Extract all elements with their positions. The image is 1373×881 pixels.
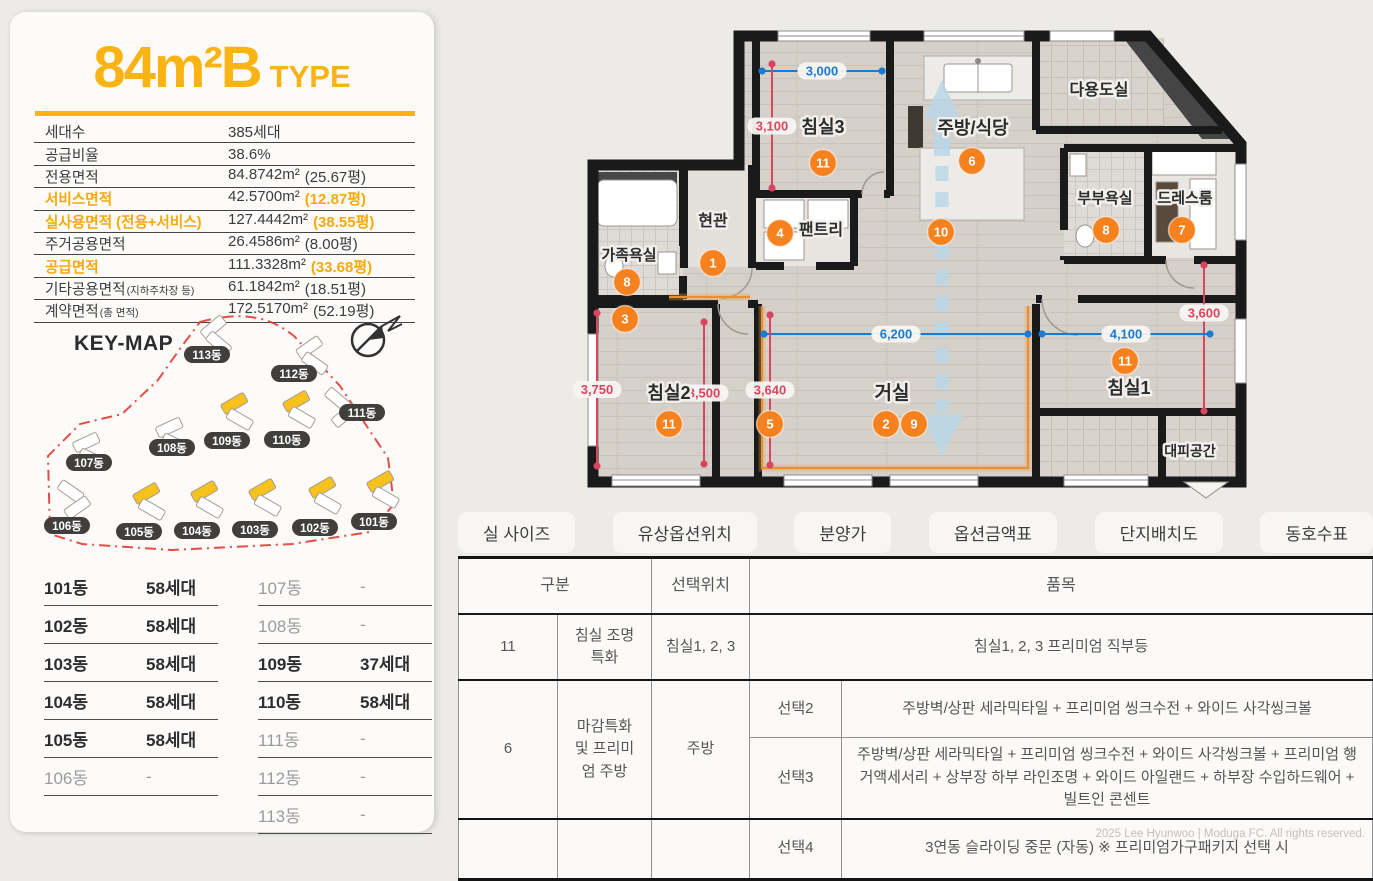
svg-text:11: 11 (1118, 354, 1132, 369)
svg-text:11: 11 (662, 417, 676, 432)
keymap-building: 102동 (292, 476, 342, 536)
svg-text:3: 3 (621, 312, 628, 327)
spec-value: 111.3328m²(33.68평) (228, 256, 372, 277)
keymap-building: 104동 (174, 480, 224, 539)
options-header-cell: 품목 (750, 558, 1373, 615)
household-count: 58세대 (146, 574, 196, 599)
keymap-building: 110동 (264, 390, 316, 448)
svg-text:2: 2 (882, 417, 889, 432)
building-number: 112동 (258, 764, 360, 789)
keymap-building: 109동 (204, 392, 254, 449)
household-count: 37세대 (360, 650, 410, 675)
option-marker-8: 8 (614, 269, 641, 296)
unit-row: 104동58세대 (44, 682, 218, 720)
household-count: 58세대 (146, 612, 196, 637)
spec-row: 기타공용면적(지하주차장 등)61.1842m²(18.51평) (34, 278, 415, 300)
svg-text:103동: 103동 (240, 524, 270, 537)
building-number: 110동 (258, 688, 360, 713)
building-number: 102동 (44, 612, 146, 637)
options-table-cell: 선택3 (750, 738, 842, 819)
svg-text:8: 8 (1102, 223, 1109, 238)
spec-label: 공급비율 (34, 144, 99, 165)
copyright-footer: 2025 Lee Hyunwoo | Moduga FC. All rights… (1095, 828, 1365, 840)
tab-price[interactable]: 분양가 (794, 512, 891, 553)
keymap-building: 103동 (232, 478, 282, 538)
keymap-building: 113동 (184, 315, 232, 363)
compass-north-icon (342, 304, 406, 368)
svg-text:5: 5 (766, 417, 773, 432)
room-label: 침실1 (1107, 378, 1150, 398)
option-marker-6: 6 (959, 148, 986, 175)
building-number: 111동 (258, 726, 360, 751)
svg-text:101동: 101동 (359, 516, 389, 529)
spec-label: 서비스면적 (34, 188, 112, 209)
building-number: 113동 (258, 802, 360, 827)
options-table-cell (459, 819, 558, 880)
building-number: 105동 (44, 726, 146, 751)
option-marker-11: 11 (656, 411, 683, 438)
household-count: - (360, 615, 366, 635)
options-table-cell: 침실1, 2, 3 프리미엄 직부등 (750, 614, 1373, 680)
household-count: - (360, 767, 366, 787)
svg-text:104동: 104동 (182, 525, 212, 538)
spec-label: 기타공용면적(지하주차장 등) (34, 278, 194, 299)
unit-row: 111동- (258, 720, 432, 758)
building-number: 101동 (44, 574, 146, 599)
unit-type-title: 84m²B (93, 35, 260, 100)
options-table-cell (652, 819, 750, 880)
option-marker-8: 8 (1093, 217, 1120, 244)
unit-row: 107동- (258, 568, 432, 606)
room-label: 침실3 (801, 117, 844, 137)
room-label: 가족욕실 (601, 247, 656, 264)
svg-text:10: 10 (934, 225, 948, 240)
svg-text:4: 4 (776, 226, 784, 241)
svg-text:107동: 107동 (74, 457, 104, 470)
svg-text:3,100: 3,100 (756, 119, 789, 134)
building-number: 103동 (44, 650, 146, 675)
spec-row: 공급비율38.6% (34, 143, 415, 165)
option-marker-4: 4 (767, 220, 794, 247)
tab-room-size[interactable]: 실 사이즈 (458, 512, 575, 553)
household-count: - (360, 805, 366, 825)
svg-text:3,000: 3,000 (806, 64, 839, 79)
room-label: 침실2 (647, 383, 690, 403)
spec-row: 실사용면적 (전용+서비스)127.4442m²(38.55평) (34, 211, 415, 233)
page-title: 84m²BTYPE (10, 34, 434, 101)
spec-row: 주거공용면적26.4586m²(8.00평) (34, 233, 415, 255)
unit-row: 109동37세대 (258, 644, 432, 682)
svg-text:6,200: 6,200 (880, 327, 913, 342)
svg-text:108동: 108동 (157, 442, 187, 455)
floorplan-section: 3,0003,1003,6006,2004,1003,7503,5003,640… (572, 14, 1262, 514)
svg-text:111동: 111동 (348, 407, 377, 420)
options-table-cell: 6 (459, 680, 558, 819)
svg-text:105동: 105동 (124, 526, 154, 539)
options-table-cell: 주방 (652, 680, 750, 819)
option-marker-10: 10 (928, 219, 955, 246)
svg-text:3,500: 3,500 (688, 386, 721, 401)
household-count: - (360, 577, 366, 597)
tab-paid-option-location[interactable]: 유상옵션위치 (613, 512, 757, 553)
svg-text:3,600: 3,600 (1188, 306, 1221, 321)
spec-label: 세대수 (34, 121, 85, 142)
spec-label: 주거공용면적 (34, 233, 126, 254)
svg-text:3,640: 3,640 (754, 383, 787, 398)
spec-value: 26.4586m²(8.00평) (228, 233, 358, 254)
options-table-header: 구분선택위치품목 (459, 558, 1373, 615)
unit-row: 110동58세대 (258, 682, 432, 720)
spec-row: 전용면적84.8742m²(25.67평) (34, 166, 415, 188)
spec-label: 공급면적 (34, 256, 99, 277)
option-marker-3: 3 (612, 306, 639, 333)
unit-type-suffix: TYPE (270, 59, 351, 94)
household-count: - (146, 767, 152, 787)
floorplan-svg: 3,0003,1003,6006,2004,1003,7503,5003,640… (572, 14, 1262, 514)
unit-row: 108동- (258, 606, 432, 644)
svg-text:109동: 109동 (212, 435, 242, 448)
options-table-cell (558, 819, 652, 880)
spec-value: 84.8742m²(25.67평) (228, 166, 366, 187)
option-marker-11: 11 (1112, 348, 1139, 375)
title-underline (35, 111, 415, 116)
tab-unit-number-table[interactable]: 동호수표 (1260, 512, 1373, 553)
spec-value: 42.5700m²(12.87평) (228, 188, 366, 209)
option-marker-9: 9 (901, 411, 928, 438)
room-label: 거실 (875, 382, 910, 404)
svg-text:102동: 102동 (300, 522, 330, 535)
building-number: 109동 (258, 650, 360, 675)
household-count: 58세대 (146, 726, 196, 751)
options-table-cell: 주방벽/상판 세라믹타일 + 프리미엄 씽크수전 + 와이드 사각씽크볼 (842, 680, 1373, 738)
svg-text:112동: 112동 (279, 368, 309, 381)
keymap-building: 108동 (149, 417, 195, 456)
svg-text:3,750: 3,750 (581, 382, 614, 397)
spec-row: 공급면적111.3328m²(33.68평) (34, 255, 415, 277)
room-label: 팬트리 (799, 221, 843, 239)
options-header-cell: 구분 (459, 558, 652, 615)
unit-row: 113동- (258, 796, 432, 834)
options-table-row: 6마감특화 및 프리미엄 주방주방선택2주방벽/상판 세라믹타일 + 프리미엄 … (459, 680, 1373, 738)
options-table-cell: 선택2 (750, 680, 842, 738)
building-number: 108동 (258, 612, 360, 637)
keymap-building: 101동 (351, 470, 400, 530)
household-count: 58세대 (360, 688, 410, 713)
keymap-building: 107동 (66, 432, 112, 471)
spec-row: 서비스면적42.5700m²(12.87평) (34, 188, 415, 210)
unit-count-table: 101동58세대102동58세대103동58세대104동58세대105동58세대… (44, 568, 420, 834)
left-info-card: 84m²BTYPE 세대수385세대공급비율38.6%전용면적84.8742m²… (10, 12, 434, 832)
svg-text:4,100: 4,100 (1110, 327, 1143, 342)
option-marker-1: 1 (700, 250, 727, 277)
unit-row: 101동58세대 (44, 568, 218, 606)
options-table-cell: 선택4 (750, 819, 842, 880)
household-count: 58세대 (146, 650, 196, 675)
spec-table: 세대수385세대공급비율38.6%전용면적84.8742m²(25.67평)서비… (34, 121, 415, 323)
household-count: 58세대 (146, 688, 196, 713)
room-label: 대피공간 (1164, 443, 1216, 459)
spec-label: 실사용면적 (전용+서비스) (34, 211, 202, 232)
svg-text:106동: 106동 (52, 520, 82, 533)
spec-label: 전용면적 (34, 166, 99, 187)
svg-text:11: 11 (816, 156, 830, 171)
building-number: 104동 (44, 688, 146, 713)
svg-text:9: 9 (910, 417, 917, 432)
units-column-left: 101동58세대102동58세대103동58세대104동58세대105동58세대… (44, 568, 218, 796)
option-marker-7: 7 (1169, 217, 1196, 244)
tab-site-plan[interactable]: 단지배치도 (1095, 512, 1223, 553)
units-column-right: 107동-108동-109동37세대110동58세대111동-112동-113동… (258, 568, 432, 834)
tab-bar: 실 사이즈유상옵션위치분양가옵션금액표단지배치도동호수표 (458, 512, 1373, 553)
unit-row: 106동- (44, 758, 218, 796)
spec-value: 61.1842m²(18.51평) (228, 278, 366, 299)
keymap-building: 106동 (44, 479, 91, 534)
options-table-cell: 마감특화 및 프리미엄 주방 (558, 680, 652, 819)
household-count: - (360, 729, 366, 749)
spec-row: 세대수385세대 (34, 121, 415, 143)
options-table-cell: 11 (459, 614, 558, 680)
options-table-cell: 침실1, 2, 3 (652, 614, 750, 680)
room-label: 현관 (698, 211, 728, 230)
option-marker-2: 2 (873, 411, 900, 438)
options-table-cell: 주방벽/상판 세라믹타일 + 프리미엄 씽크수전 + 와이드 사각씽크볼 + 프… (842, 738, 1373, 819)
svg-text:7: 7 (1178, 223, 1185, 238)
spec-value: 127.4442m²(38.55평) (228, 211, 374, 232)
unit-row: 105동58세대 (44, 720, 218, 758)
keymap-title: KEY-MAP (74, 332, 173, 356)
keymap-section: 113동112동111동109동110동108동107동106동105동104동… (22, 308, 422, 570)
options-table-row: 11침실 조명특화침실1, 2, 3침실1, 2, 3 프리미엄 직부등 (459, 614, 1373, 680)
keymap-building: 105동 (116, 482, 166, 540)
tab-option-price-table[interactable]: 옵션금액표 (929, 512, 1057, 553)
unit-row: 112동- (258, 758, 432, 796)
room-label: 부부욕실 (1077, 190, 1132, 207)
option-marker-11: 11 (810, 150, 837, 177)
building-number: 107동 (258, 574, 360, 599)
option-marker-5: 5 (757, 411, 784, 438)
svg-text:110동: 110동 (272, 434, 302, 447)
keymap-building: 112동 (271, 335, 329, 382)
unit-row: 103동58세대 (44, 644, 218, 682)
options-header-cell: 선택위치 (652, 558, 750, 615)
options-table-cell: 침실 조명특화 (558, 614, 652, 680)
room-label: 다용도실 (1070, 81, 1129, 99)
keymap-building: 111동 (324, 387, 385, 428)
building-number: 106동 (44, 764, 146, 789)
svg-text:6: 6 (968, 154, 975, 169)
svg-text:8: 8 (623, 275, 630, 290)
spec-value: 38.6% (228, 146, 271, 163)
svg-text:1: 1 (709, 256, 716, 271)
spec-value: 385세대 (228, 121, 281, 142)
room-label: 주방/식당 (937, 118, 1009, 138)
unit-row: 102동58세대 (44, 606, 218, 644)
room-label: 드레스룸 (1157, 190, 1212, 207)
svg-text:113동: 113동 (192, 349, 222, 362)
